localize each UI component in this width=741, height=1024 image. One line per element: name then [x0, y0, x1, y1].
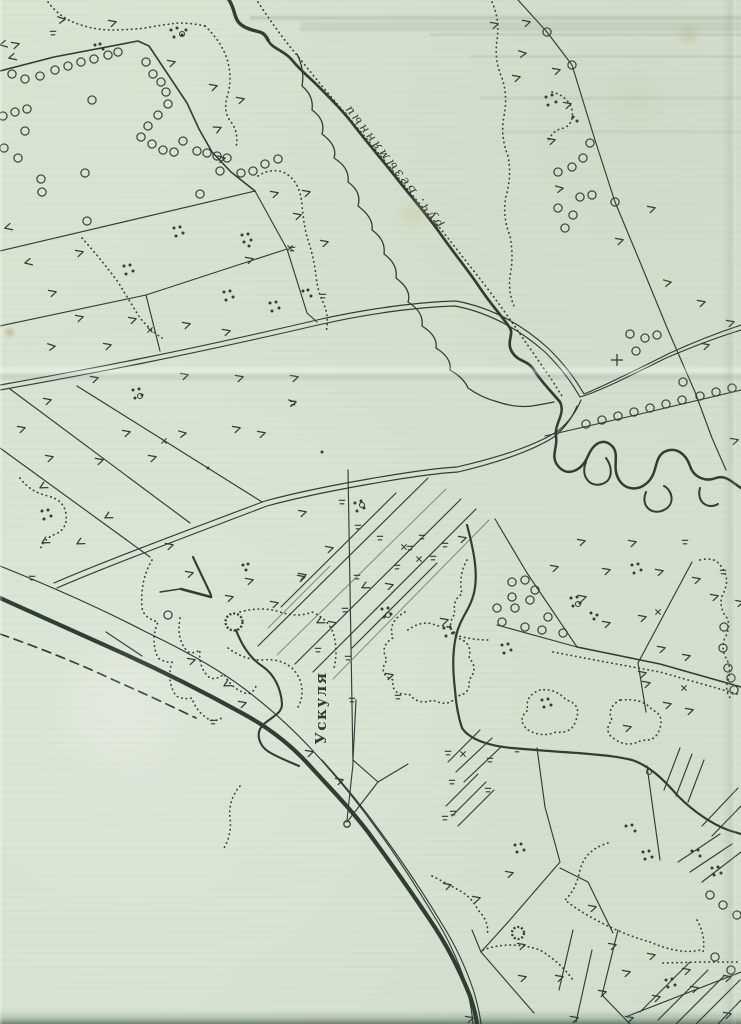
tree-circle-icon [88, 96, 96, 104]
x-mark-icon [287, 245, 292, 250]
ground-dot-icon [381, 608, 384, 611]
ground-dot-icon [541, 699, 544, 702]
river-loop [584, 458, 611, 485]
ground-dot-icon [720, 872, 723, 875]
drain-strip [295, 499, 461, 664]
shrub-mark-icon [235, 375, 243, 381]
tree-circle-icon [149, 70, 157, 78]
tree-circle-icon [36, 72, 44, 80]
shrub-mark-icon [735, 600, 741, 606]
tree-circle-icon [712, 388, 720, 396]
dotted-trail [205, 26, 237, 148]
road-upper-edge1 [0, 301, 584, 394]
small-circle-icon [386, 613, 391, 618]
shrub-mark-icon [361, 582, 370, 589]
roads [0, 301, 741, 1024]
river [229, 0, 741, 512]
shrub-mark-icon [178, 431, 186, 438]
shrub-mark-icon [692, 577, 700, 583]
ground-dot-icon [648, 850, 651, 853]
shrub-mark-icon [128, 317, 136, 323]
shrub-mark-icon [615, 238, 623, 244]
shrub-mark-icon [39, 482, 48, 490]
tree-circle-icon [37, 175, 45, 183]
tree-circle-icon [498, 618, 506, 626]
hatch-strips [258, 478, 741, 1024]
drain-strip [258, 478, 428, 646]
tree-circle-icon [632, 347, 640, 355]
shrub-mark-icon [5, 223, 13, 229]
ground-dot-icon [207, 467, 210, 470]
shrub-mark-icon [518, 975, 526, 981]
ground-dot-icon [631, 564, 634, 567]
tree-circle-icon [83, 217, 91, 225]
parcel-edge [0, 249, 287, 326]
ground-dot-icon [99, 43, 102, 46]
ground-dot-icon [173, 227, 176, 230]
tree-circle-icon [81, 169, 89, 177]
ground-dot-icon [671, 978, 674, 981]
hatch [458, 790, 494, 826]
river-west-bank [297, 54, 554, 407]
shrub-mark-icon [638, 615, 646, 621]
tree-circle-icon [144, 122, 152, 130]
ground-dot-icon [572, 605, 575, 608]
shrub-mark-icon [182, 322, 190, 328]
parcel-edge [560, 868, 613, 933]
ground-dot-icon [570, 597, 573, 600]
ground-dot-icon [50, 515, 53, 518]
parcel-edge [347, 764, 408, 822]
tree-circle-icon [559, 629, 567, 637]
tree-circle-icon [724, 664, 732, 672]
shrub-mark-icon [25, 258, 33, 265]
shrub-mark-icon [43, 398, 51, 404]
river-loop [699, 488, 718, 506]
drain-strip [277, 489, 446, 655]
tree-circle-icon [104, 51, 112, 59]
shrub-mark-icon [316, 617, 325, 624]
shrub-mark-icon [682, 968, 690, 974]
ground-dot-icon [269, 302, 272, 305]
tree-circle-icon [554, 168, 562, 176]
map-labels: руч. БезымянныйУскуля [312, 102, 446, 745]
grass-mark-icon [377, 536, 383, 540]
tree-circle-icon [720, 623, 728, 631]
shrub-mark-icon [663, 280, 671, 287]
shrub-mark-icon [302, 190, 310, 196]
shrub-mark-icon [608, 943, 616, 949]
ground-dot-icon [699, 855, 702, 858]
hatch [446, 774, 478, 806]
x-mark-icon [655, 609, 660, 614]
shrub-mark-icon [726, 320, 734, 326]
grass-mark-icon [395, 695, 401, 699]
tree-circle-icon [719, 901, 727, 909]
shrub-mark-icon [505, 871, 513, 877]
ground-dot-icon [713, 874, 716, 877]
shrub-mark-icon [232, 426, 240, 432]
shrub-mark-icon [76, 538, 85, 546]
tree-circle-icon [90, 55, 98, 63]
ground-dot-icon [640, 569, 643, 572]
tree-circle-icon [579, 154, 587, 162]
x-mark-icon [161, 438, 166, 443]
ground-dot-icon [245, 569, 248, 572]
ground-dot-icon [123, 265, 126, 268]
ground-dot-icon [383, 616, 386, 619]
ground-dot-icon [43, 518, 46, 521]
shrub-mark-icon [45, 455, 53, 461]
dotted-line [663, 962, 741, 963]
grass-mark-icon [315, 648, 321, 652]
ground-dot-icon [94, 44, 97, 47]
shrub-mark-icon [108, 20, 116, 26]
shrub-mark-icon [245, 578, 253, 584]
streams [160, 525, 741, 834]
shrub-mark-icon [563, 102, 571, 108]
parcel-edge [353, 700, 378, 782]
parcel-chain [481, 748, 560, 952]
ground-dot-icon [651, 856, 654, 859]
tree-circle-icon [11, 108, 19, 116]
shrub-mark-icon [17, 426, 25, 432]
ground-dot-icon [47, 509, 50, 512]
dotted-line [697, 920, 704, 952]
tree-circle-icon [733, 911, 741, 919]
ground-dot-icon [590, 612, 593, 615]
tree-circle-icon [159, 146, 167, 154]
tree-circle-icon [508, 593, 516, 601]
shrub-mark-icon [647, 206, 655, 212]
dotted-meander [258, 171, 327, 332]
tree-circle-icon [154, 111, 162, 119]
river-main [268, 40, 560, 402]
ground-dot-icon [576, 596, 579, 599]
ground-dot-icon [520, 843, 523, 846]
road-lower-edge2 [57, 406, 577, 588]
shrub-mark-icon [517, 943, 525, 949]
ground-dot-icon [691, 850, 694, 853]
parcel-edge [0, 191, 255, 251]
tree-circle-icon [576, 193, 584, 201]
shrub-mark-icon [305, 750, 313, 756]
shrub-mark-icon [320, 240, 328, 246]
shrub-mark-icon [270, 191, 278, 197]
shrub-mark-icon [578, 595, 586, 601]
river-headwater [229, 0, 268, 40]
grass-mark-icon [320, 294, 326, 298]
tree-circle-icon [21, 127, 29, 135]
ground-dot-icon [547, 104, 550, 107]
tree-circle-icon [526, 596, 534, 604]
x-mark-icon [416, 556, 421, 561]
grass-mark-icon [345, 656, 351, 660]
river-meanders [554, 402, 741, 488]
creek-west [160, 589, 180, 592]
shrub-mark-icon [187, 658, 195, 664]
shrub-mark-icon [167, 60, 175, 66]
ground-dot-icon [551, 94, 554, 97]
ground-dot-icon [185, 29, 188, 32]
ground-dot-icon [452, 632, 455, 635]
hatch [676, 754, 692, 796]
shrub-mark-icon [385, 583, 393, 589]
highway-flank-se [322, 760, 481, 1024]
ground-dot-icon [667, 986, 670, 989]
tree-circle-icon [64, 62, 72, 70]
pond-icon [226, 614, 243, 631]
shrub-mark-icon [518, 51, 527, 58]
ground-dot-icon [523, 849, 526, 852]
tree-circle-icon [157, 78, 165, 86]
ground-dot-icon [593, 618, 596, 621]
shrub-mark-icon [209, 84, 217, 90]
parcel-edge [576, 950, 592, 1022]
shrub-mark-icon [701, 343, 709, 349]
tree-circle-icon [0, 144, 8, 152]
shrub-mark-icon [11, 42, 19, 48]
tree-circle-icon [646, 404, 654, 412]
tree-circle-icon [137, 133, 145, 141]
tree-circle-icon [544, 613, 552, 621]
tree-circle-icon [706, 891, 714, 899]
ground-dot-icon [250, 239, 253, 242]
shrub-mark-icon [122, 430, 130, 436]
ground-dot-icon [310, 295, 313, 298]
shrub-mark-icon [325, 546, 333, 552]
ground-dot-icon [449, 626, 452, 629]
dotted-blob [20, 478, 66, 550]
shrub-mark-icon [625, 1016, 633, 1022]
ground-dot-icon [547, 698, 550, 701]
tree-circle-icon [679, 378, 687, 386]
x-mark-icon [401, 544, 406, 549]
symbols-shrubs [0, 17, 741, 1023]
dotted-blob [522, 690, 578, 735]
ground-dot-icon [501, 644, 504, 647]
tree-circle-icon [8, 70, 16, 78]
shrub-mark-icon [443, 883, 451, 889]
tree-circle-icon [170, 148, 178, 156]
grass-mark-icon [339, 500, 345, 504]
shrub-mark-icon [293, 213, 301, 219]
grass-mark-icon [682, 540, 688, 544]
tree-circle-icon [164, 100, 172, 108]
map-label: руч. Безымянный [339, 102, 446, 233]
shrub-mark-icon [642, 681, 650, 687]
shrub-mark-icon [577, 539, 585, 545]
shrub-mark-icon [555, 186, 563, 193]
strip-boundary [0, 448, 150, 557]
shrub-mark-icon [685, 708, 693, 714]
symbols-misc [147, 245, 686, 939]
shrub-mark-icon [257, 431, 265, 437]
parcel-chain [472, 930, 534, 1013]
ground-dot-icon [711, 867, 714, 870]
shrub-mark-icon [225, 595, 233, 601]
ground-dot-icon [644, 858, 647, 861]
scanned-map-page: руч. БезымянныйУскуля [0, 0, 741, 1024]
shrub-mark-icon [623, 725, 631, 731]
tree-circle-icon [588, 191, 596, 199]
ground-dot-icon [170, 29, 173, 32]
shrub-mark-icon [9, 53, 17, 59]
tree-circle-icon [711, 953, 719, 961]
ditch-stream [453, 525, 741, 834]
drain-strip [333, 520, 489, 679]
shrub-mark-icon [238, 701, 246, 707]
tree-circle-icon [148, 140, 156, 148]
hatch [464, 746, 502, 782]
ground-dot-icon [555, 101, 558, 104]
tree-circle-icon [493, 604, 501, 612]
cross-mark-icon [611, 354, 623, 366]
shrub-mark-icon [657, 646, 665, 652]
strip-boundary [10, 389, 190, 523]
ground-dot-icon [665, 979, 668, 982]
ground-dot-icon [633, 572, 636, 575]
tree-circle-icon [237, 169, 245, 177]
x-mark-icon [460, 751, 465, 756]
shrub-mark-icon [663, 702, 671, 708]
tree-circle-icon [51, 66, 59, 74]
tree-circle-icon [261, 160, 269, 168]
tree-circle-icon [179, 137, 187, 145]
shrub-mark-icon [222, 329, 230, 335]
shrub-mark-icon [47, 344, 56, 351]
shrub-mark-icon [236, 97, 244, 103]
tree-circle-icon [216, 167, 224, 175]
dotted-boundary [492, 2, 514, 306]
ground-dot-icon [182, 232, 185, 235]
hatch [678, 834, 720, 862]
shrub-mark-icon [148, 455, 156, 461]
tree-circle-icon [193, 147, 201, 155]
grass-mark-icon [449, 780, 455, 784]
ground-dot-icon [41, 510, 44, 513]
ground-dot-icon [387, 607, 390, 610]
ground-dot-icon [102, 48, 105, 51]
shrub-mark-icon [103, 343, 111, 349]
survey-line [518, 0, 726, 470]
shrub-mark-icon [555, 975, 563, 981]
pond-icon [512, 927, 524, 939]
tree-circle-icon [554, 204, 562, 212]
shrub-mark-icon [75, 315, 83, 321]
dotted-blob [608, 700, 661, 744]
highway-flank-nw [0, 566, 473, 1024]
tree-circle-icon [586, 139, 594, 147]
road-upper-edge2 [0, 306, 580, 397]
hatch [688, 760, 704, 802]
shrub-mark-icon [655, 569, 663, 575]
tree-circle-icon [14, 154, 22, 162]
dotted-meander [82, 238, 162, 338]
ground-dot-icon [132, 270, 135, 273]
ground-dot-icon [125, 273, 128, 276]
ground-dot-icon [247, 233, 250, 236]
tree-circle-icon [114, 48, 122, 56]
tree-circle-icon [730, 686, 738, 694]
shrub-mark-icon [465, 1016, 473, 1022]
tree-circle-icon [626, 330, 634, 338]
ground-dot-icon [175, 235, 178, 238]
shrub-mark-icon [697, 300, 705, 306]
parcel-edge [602, 930, 630, 1024]
shrub-mark-icon [104, 512, 113, 520]
tree-circle-icon [728, 384, 736, 392]
shrub-mark-icon [490, 22, 498, 28]
shrub-mark-icon [385, 673, 393, 679]
tree-circle-icon [727, 674, 735, 682]
hatch [702, 852, 741, 882]
ground-dot-icon [634, 830, 637, 833]
x-mark-icon [681, 685, 686, 690]
ground-dot-icon [631, 824, 634, 827]
dotted-outline [451, 560, 488, 640]
ground-dot-icon [596, 614, 599, 617]
shrub-mark-icon [628, 540, 636, 546]
ground-dot-icon [243, 241, 246, 244]
ground-dot-icon [271, 310, 274, 313]
tree-circle-icon [727, 966, 735, 974]
grass-mark-icon [442, 816, 448, 820]
shrub-mark-icon [90, 376, 98, 382]
ground-dot-icon [674, 984, 677, 987]
ground-dot-icon [507, 643, 510, 646]
tree-circle-icon [142, 58, 150, 66]
ground-dot-icon [138, 388, 141, 391]
shrub-mark-icon [185, 571, 193, 577]
tree-circle-icon [561, 224, 569, 232]
ground-dot-icon [307, 289, 310, 292]
drain-strip [313, 509, 476, 672]
tree-circle-icon [521, 576, 529, 584]
shrub-mark-icon [647, 953, 655, 959]
tree-circle-icon [508, 578, 516, 586]
shrub-mark-icon [682, 654, 690, 660]
map-label: Ускуля [312, 672, 330, 745]
ground-dot-icon [697, 849, 700, 852]
dotted-trail [48, 2, 205, 30]
dotted-flank [553, 652, 741, 695]
tree-circle-icon [511, 604, 519, 612]
tree-circle-icon [274, 155, 282, 163]
tree-circle-icon [21, 75, 29, 83]
ground-dot-icon [545, 96, 548, 99]
ground-dot-icon [173, 36, 176, 39]
shrub-mark-icon [472, 896, 480, 902]
drain-strip [352, 563, 437, 648]
creek-stub [181, 589, 211, 597]
tree-circle-icon [568, 163, 576, 171]
dotted-blob [548, 92, 572, 142]
shrub-mark-icon [588, 905, 596, 911]
hatch [658, 970, 708, 1020]
parcel-edge [559, 930, 573, 990]
ground-dot-icon [516, 851, 519, 854]
tree-circle-icon [569, 211, 577, 219]
tree-circle-icon [38, 188, 46, 196]
ground-dot-icon [241, 234, 244, 237]
ground-dot-icon [179, 226, 182, 229]
grass-mark-icon [442, 543, 448, 547]
shrub-mark-icon [552, 68, 560, 74]
map-canvas: руч. БезымянныйУскуля [0, 0, 741, 1024]
strip-boundary [77, 386, 262, 502]
ground-dot-icon [637, 563, 640, 566]
